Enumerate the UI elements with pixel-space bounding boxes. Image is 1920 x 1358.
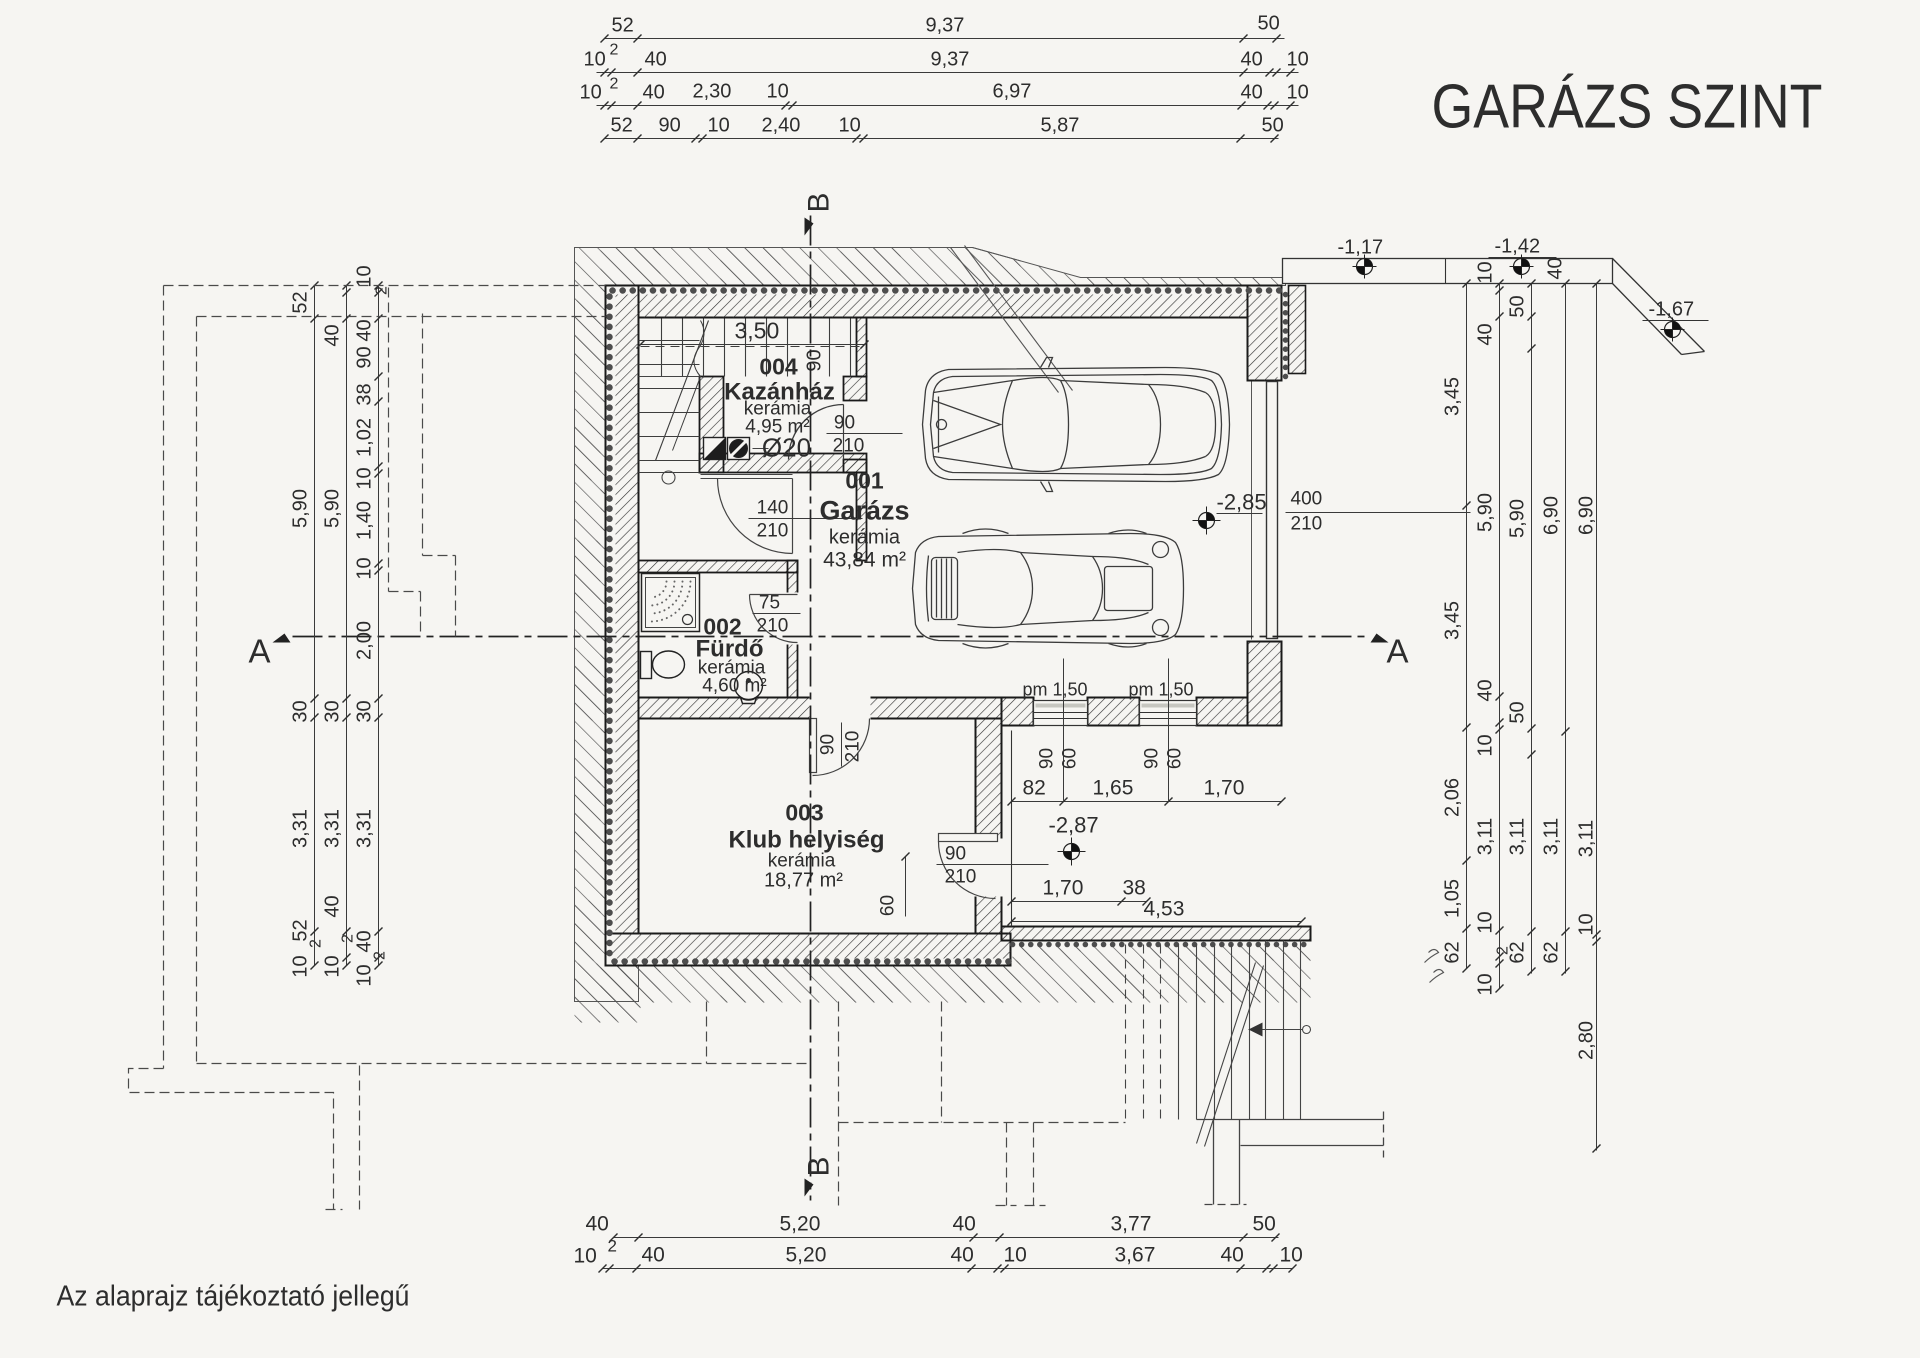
svg-text:10: 10 xyxy=(354,265,376,287)
svg-text:2: 2 xyxy=(308,939,325,948)
svg-text:50: 50 xyxy=(1507,295,1529,317)
svg-text:210: 210 xyxy=(833,436,865,457)
svg-text:3,31: 3,31 xyxy=(354,809,376,848)
svg-text:3,45: 3,45 xyxy=(1442,601,1464,640)
svg-text:40: 40 xyxy=(643,82,665,104)
svg-text:40: 40 xyxy=(322,895,344,917)
svg-text:210: 210 xyxy=(757,616,789,637)
svg-text:1,02: 1,02 xyxy=(354,418,376,457)
svg-text:140: 140 xyxy=(757,498,789,519)
svg-text:10: 10 xyxy=(322,955,344,977)
svg-text:Garázs: Garázs xyxy=(819,496,909,526)
svg-text:90: 90 xyxy=(818,734,839,755)
svg-text:62: 62 xyxy=(1541,941,1563,963)
svg-text:50: 50 xyxy=(1258,13,1280,35)
svg-text:1,40: 1,40 xyxy=(354,501,376,540)
svg-text:210: 210 xyxy=(843,731,864,763)
svg-text:3,11: 3,11 xyxy=(1576,820,1598,857)
svg-text:2,80: 2,80 xyxy=(1576,1021,1598,1060)
svg-text:2,00: 2,00 xyxy=(354,621,376,660)
svg-text:003: 003 xyxy=(785,800,823,826)
svg-text:62: 62 xyxy=(1442,941,1464,963)
svg-text:60: 60 xyxy=(1060,748,1081,769)
svg-text:10: 10 xyxy=(1475,973,1497,995)
svg-text:38: 38 xyxy=(1123,877,1146,900)
svg-text:5,90: 5,90 xyxy=(290,489,312,528)
svg-text:10: 10 xyxy=(354,964,376,986)
svg-text:-1,42: -1,42 xyxy=(1495,236,1541,258)
svg-text:10: 10 xyxy=(1475,261,1497,283)
svg-text:B: B xyxy=(803,1156,836,1176)
svg-text:2,30: 2,30 xyxy=(693,81,732,103)
svg-text:43,84 m²: 43,84 m² xyxy=(823,549,906,572)
svg-text:30: 30 xyxy=(290,700,312,722)
svg-text:82: 82 xyxy=(1023,777,1046,800)
svg-text:A: A xyxy=(1387,633,1409,670)
svg-text:3,11: 3,11 xyxy=(1541,818,1563,855)
svg-text:90: 90 xyxy=(354,346,376,368)
svg-text:75: 75 xyxy=(759,593,780,614)
svg-text:40: 40 xyxy=(953,1213,976,1236)
svg-text:50: 50 xyxy=(1262,115,1284,137)
svg-text:pm 1,50: pm 1,50 xyxy=(1129,680,1194,700)
svg-text:40: 40 xyxy=(354,930,376,952)
svg-text:2,06: 2,06 xyxy=(1442,778,1464,817)
svg-text:Az alaprajz tájékoztató jelleg: Az alaprajz tájékoztató jellegű xyxy=(57,1281,410,1313)
svg-text:6,90: 6,90 xyxy=(1541,496,1563,535)
svg-text:Klub helyiség: Klub helyiség xyxy=(728,827,884,854)
svg-text:90: 90 xyxy=(659,115,681,137)
svg-text:B: B xyxy=(803,192,836,212)
svg-text:2,40: 2,40 xyxy=(762,115,801,137)
svg-text:90: 90 xyxy=(1037,748,1058,769)
svg-text:3,77: 3,77 xyxy=(1111,1213,1152,1236)
svg-text:40: 40 xyxy=(1475,323,1497,345)
svg-text:62: 62 xyxy=(1507,941,1529,963)
svg-text:3,45: 3,45 xyxy=(1442,377,1464,416)
svg-text:9,37: 9,37 xyxy=(931,49,970,71)
svg-text:52: 52 xyxy=(612,15,634,37)
svg-text:50: 50 xyxy=(1253,1213,1276,1236)
svg-text:60: 60 xyxy=(1165,748,1186,769)
svg-text:10: 10 xyxy=(574,1245,597,1268)
svg-text:50: 50 xyxy=(1507,701,1529,723)
svg-text:5,20: 5,20 xyxy=(786,1244,827,1267)
svg-text:10: 10 xyxy=(1475,734,1497,756)
svg-text:18,77 m²: 18,77 m² xyxy=(764,870,843,892)
svg-text:GARÁZS SZINT: GARÁZS SZINT xyxy=(1432,73,1823,142)
svg-text:40: 40 xyxy=(1545,257,1567,279)
svg-text:2: 2 xyxy=(608,1237,617,1256)
svg-text:210: 210 xyxy=(757,521,789,542)
svg-text:210: 210 xyxy=(1291,514,1323,535)
svg-text:2: 2 xyxy=(372,951,389,960)
svg-text:10: 10 xyxy=(708,115,730,137)
svg-text:4,60 m²: 4,60 m² xyxy=(702,676,766,697)
svg-text:40: 40 xyxy=(642,1244,665,1267)
svg-text:1,05: 1,05 xyxy=(1442,879,1464,918)
svg-text:004: 004 xyxy=(759,354,798,380)
svg-text:001: 001 xyxy=(845,468,884,494)
svg-text:1,70: 1,70 xyxy=(1043,877,1084,900)
svg-text:10: 10 xyxy=(1287,82,1309,104)
svg-text:4,53: 4,53 xyxy=(1144,898,1185,921)
svg-text:40: 40 xyxy=(951,1244,974,1267)
svg-text:52: 52 xyxy=(290,919,312,941)
svg-text:90: 90 xyxy=(804,349,826,371)
svg-text:40: 40 xyxy=(1475,679,1497,701)
svg-text:10: 10 xyxy=(354,467,376,489)
svg-text:52: 52 xyxy=(611,115,633,137)
svg-text:10: 10 xyxy=(584,49,606,71)
svg-text:90: 90 xyxy=(834,413,855,434)
svg-text:3,11: 3,11 xyxy=(1507,818,1529,855)
svg-text:-1,17: -1,17 xyxy=(1338,237,1384,259)
svg-text:A: A xyxy=(249,633,271,670)
svg-text:3,11: 3,11 xyxy=(1475,818,1497,855)
svg-text:40: 40 xyxy=(1241,49,1263,71)
svg-text:3,50: 3,50 xyxy=(735,318,780,344)
svg-text:5,87: 5,87 xyxy=(1041,115,1080,137)
svg-text:pm 1,50: pm 1,50 xyxy=(1023,680,1088,700)
svg-text:52: 52 xyxy=(290,291,312,313)
svg-text:-2,87: -2,87 xyxy=(1049,813,1099,838)
svg-text:30: 30 xyxy=(354,700,376,722)
svg-text:10: 10 xyxy=(1287,49,1309,71)
svg-text:40: 40 xyxy=(645,49,667,71)
svg-text:10: 10 xyxy=(1475,911,1497,933)
svg-text:3,67: 3,67 xyxy=(1115,1244,1156,1267)
svg-text:9,37: 9,37 xyxy=(926,15,965,37)
svg-text:10: 10 xyxy=(839,115,861,137)
svg-text:210: 210 xyxy=(945,867,977,888)
svg-text:60: 60 xyxy=(878,895,899,916)
svg-text:10: 10 xyxy=(1280,1244,1303,1267)
svg-text:10: 10 xyxy=(580,82,602,104)
svg-text:10: 10 xyxy=(767,81,789,103)
svg-text:5,90: 5,90 xyxy=(1507,499,1529,538)
svg-text:3,31: 3,31 xyxy=(290,809,312,848)
svg-text:kerámia: kerámia xyxy=(768,851,836,872)
svg-text:10: 10 xyxy=(1576,913,1598,935)
svg-text:40: 40 xyxy=(322,324,344,346)
svg-text:10: 10 xyxy=(1004,1244,1027,1267)
svg-text:Ø20: Ø20 xyxy=(762,433,811,463)
svg-text:2: 2 xyxy=(610,76,619,93)
svg-text:40: 40 xyxy=(1241,82,1263,104)
svg-text:5,90: 5,90 xyxy=(1475,493,1497,532)
svg-text:40: 40 xyxy=(354,319,376,341)
svg-text:kerámia: kerámia xyxy=(829,527,901,549)
svg-text:1,65: 1,65 xyxy=(1093,777,1134,800)
svg-text:30: 30 xyxy=(322,700,344,722)
svg-text:40: 40 xyxy=(586,1213,609,1236)
svg-text:-2,85: -2,85 xyxy=(1217,490,1267,515)
svg-text:5,90: 5,90 xyxy=(322,489,344,528)
svg-text:90: 90 xyxy=(945,844,966,865)
svg-text:5,20: 5,20 xyxy=(780,1213,821,1236)
svg-text:1,70: 1,70 xyxy=(1204,777,1245,800)
svg-text:2: 2 xyxy=(610,42,619,59)
svg-text:6,97: 6,97 xyxy=(993,81,1032,103)
svg-text:90: 90 xyxy=(1142,748,1163,769)
svg-text:3,31: 3,31 xyxy=(322,809,344,848)
svg-text:6,90: 6,90 xyxy=(1576,496,1598,535)
svg-text:40: 40 xyxy=(1221,1244,1244,1267)
svg-text:10: 10 xyxy=(290,955,312,977)
svg-text:-1,67: -1,67 xyxy=(1649,299,1695,321)
svg-text:400: 400 xyxy=(1291,489,1323,510)
svg-text:38: 38 xyxy=(354,383,376,405)
svg-text:10: 10 xyxy=(354,557,376,579)
